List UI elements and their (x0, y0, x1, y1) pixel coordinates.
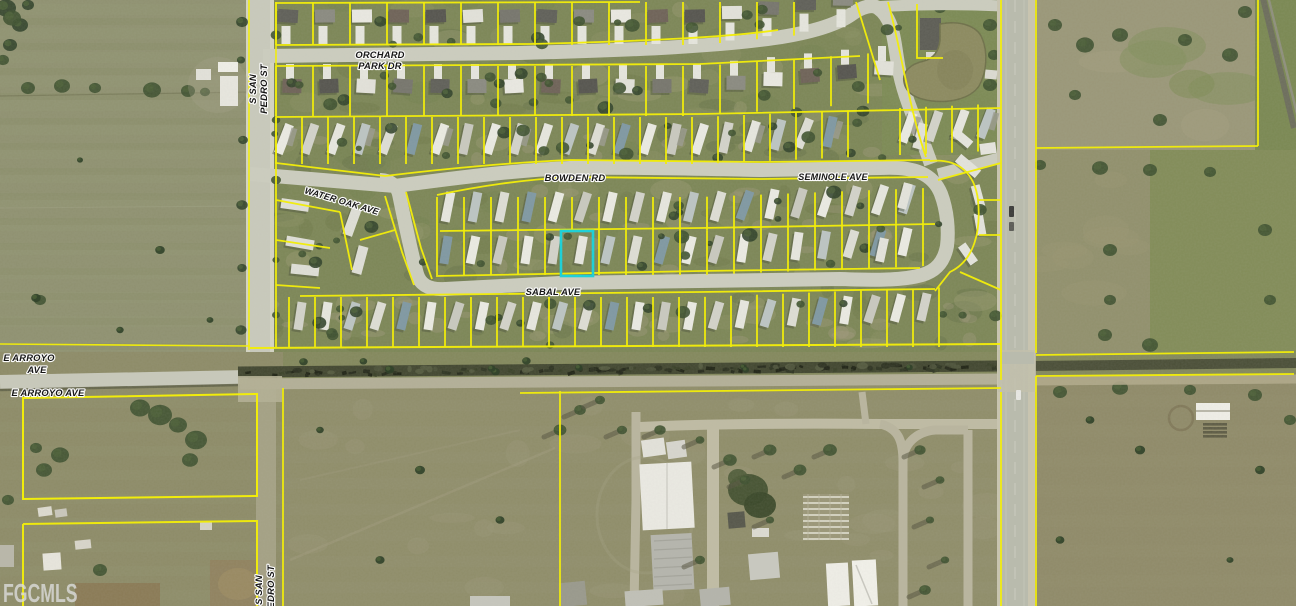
svg-text:FGCMLS: FGCMLS (3, 579, 78, 606)
